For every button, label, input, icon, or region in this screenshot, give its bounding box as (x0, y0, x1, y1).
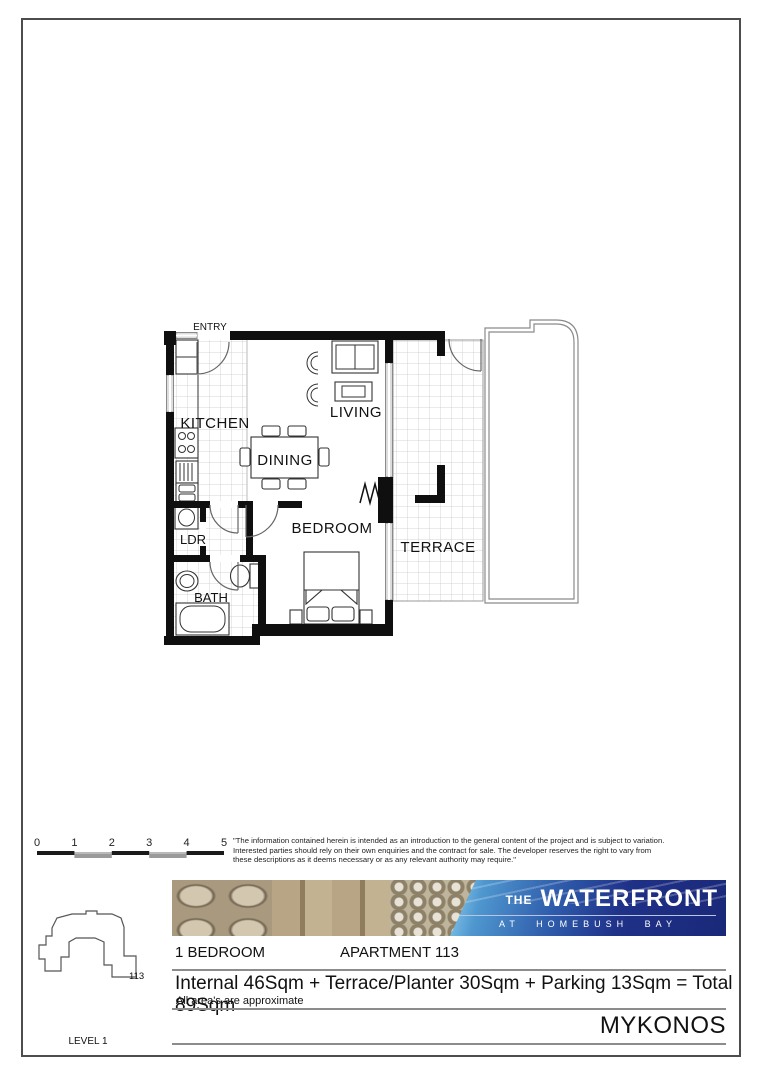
brand-logo: THEWATERFRONT AT HOMEBUSH BAY (458, 885, 718, 929)
entry-label: ENTRY (193, 322, 227, 333)
dining-chair (319, 448, 329, 466)
toilet-bowl (231, 565, 250, 587)
scale-tick: 3 (146, 837, 152, 849)
flyer-page: { "floor_plan": { "labels": { "entry": "… (0, 0, 764, 1080)
living-furniture (307, 341, 378, 406)
disclaimer-text: "The information contained herein is int… (233, 836, 669, 865)
scale-tick: 5 (221, 837, 227, 849)
scale-tick: 2 (109, 837, 115, 849)
ldr-label: LDR (180, 532, 206, 547)
brand-panel: THEWATERFRONT AT HOMEBUSH BAY (450, 880, 726, 936)
divider-line (172, 1008, 726, 1010)
dining-label: DINING (257, 452, 313, 469)
dining-chair (288, 479, 306, 489)
stone-wall-photo (172, 880, 272, 936)
pillow (307, 607, 329, 621)
planter-outline (485, 320, 578, 603)
dining-chair (262, 479, 280, 489)
bedside-table (290, 610, 302, 624)
dining-chair (288, 426, 306, 436)
building-name: MYKONOS (172, 1012, 726, 1040)
kitchen-label: KITCHEN (180, 415, 249, 432)
cooktop (175, 428, 198, 458)
scale-tick: 4 (184, 837, 190, 849)
toilet-tank (250, 564, 259, 588)
door-stack-symbol (360, 484, 380, 503)
brand-name: WATERFRONT (540, 885, 718, 912)
bedside-table (360, 610, 372, 624)
bedroom-furniture (290, 552, 372, 624)
dining-chair (240, 448, 250, 466)
approx-note: All area's are approximate (176, 995, 303, 1007)
key-plan: 113 LEVEL 1 (30, 900, 150, 1050)
divider-line (172, 1043, 726, 1045)
bath-label: BATH (194, 590, 228, 605)
building-footprint (39, 911, 136, 977)
timber-photo (272, 880, 390, 936)
divider-line (172, 969, 726, 971)
tv-unit (335, 382, 372, 401)
brand-bar: THEWATERFRONT AT HOMEBUSH BAY (172, 880, 726, 936)
key-plan-unit-number: 113 (129, 971, 144, 982)
terrace-label: TERRACE (400, 539, 475, 556)
floor-plan: ENTRY KITCHEN LIVING DINING BEDROOM TERR… (150, 300, 595, 660)
bedroom-count: 1 BEDROOM (175, 944, 265, 961)
terrace-privacy-wall (415, 495, 445, 503)
brand-prefix: THE (505, 893, 532, 907)
armchair (307, 352, 318, 374)
scale-tick: 0 (34, 837, 40, 849)
armchair (307, 384, 318, 406)
brand-divider (458, 915, 716, 916)
apartment-number: APARTMENT 113 (340, 944, 459, 961)
dining-chair (262, 426, 280, 436)
key-plan-level: LEVEL 1 (68, 1036, 108, 1047)
brand-tagline: AT HOMEBUSH BAY (458, 919, 718, 929)
bedroom-label: BEDROOM (291, 520, 372, 537)
scale-tick: 1 (71, 837, 77, 849)
scale-bar: 0 1 2 3 4 5 (28, 830, 233, 864)
pillow (332, 607, 354, 621)
drainer (176, 461, 198, 483)
living-label: LIVING (330, 404, 382, 421)
bathtub (176, 603, 229, 635)
